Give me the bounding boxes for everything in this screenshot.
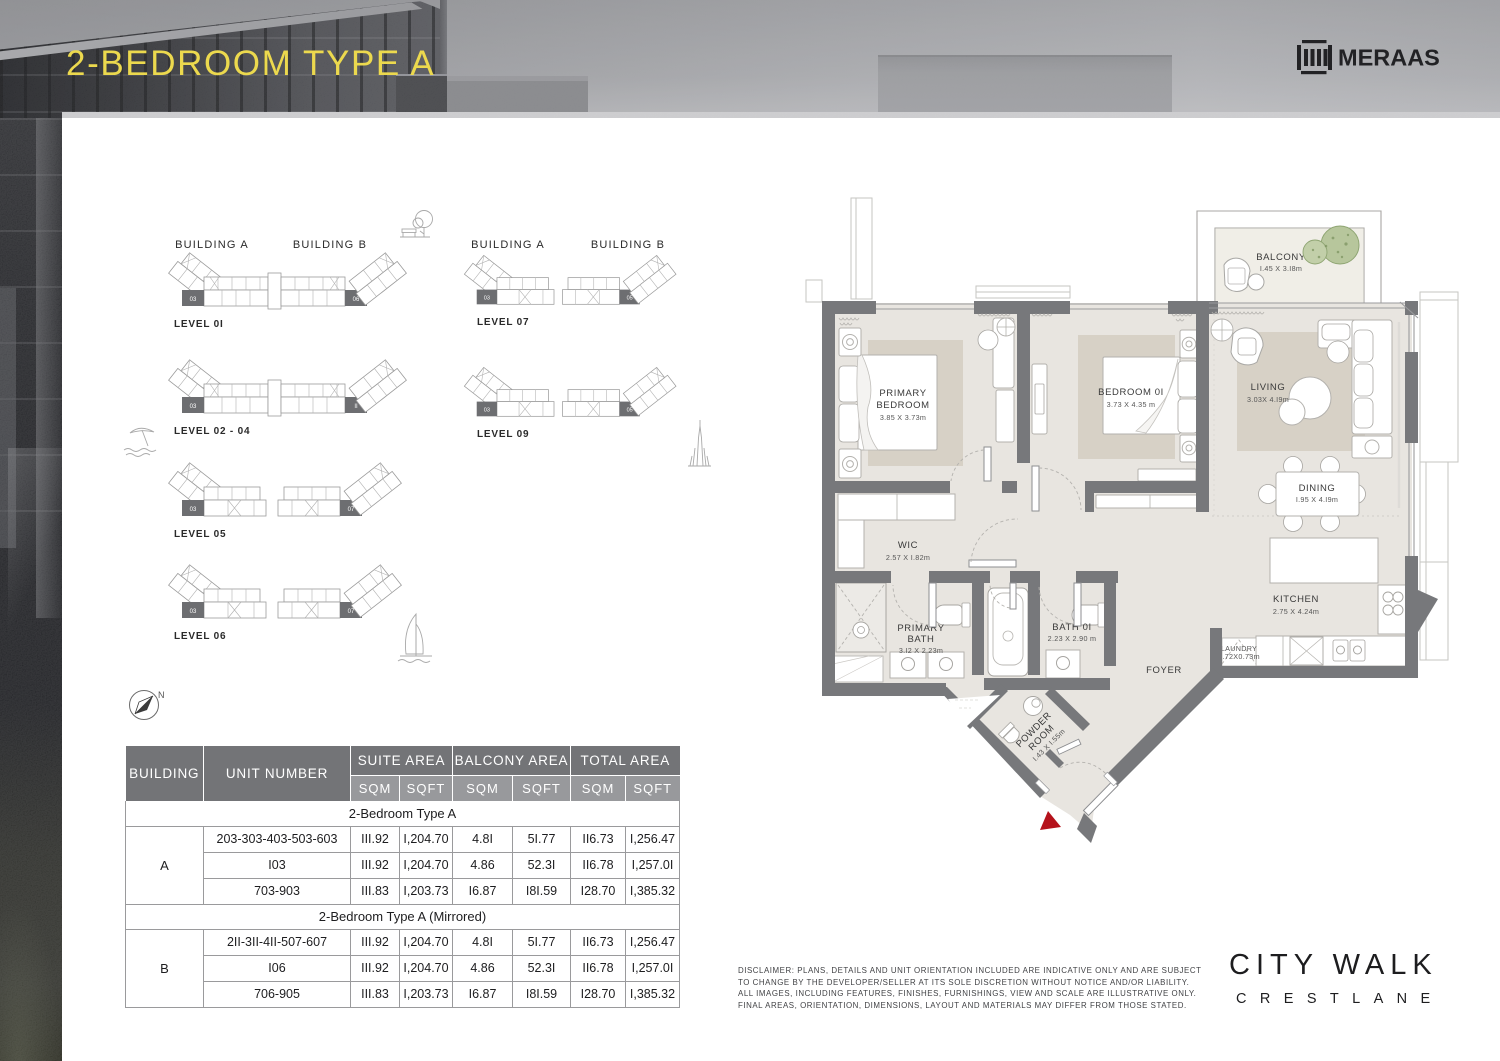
svg-text:03: 03	[190, 609, 197, 615]
svg-text:07: 07	[348, 507, 355, 513]
svg-text:03: 03	[484, 408, 490, 414]
svg-text:WIC: WIC	[898, 540, 918, 551]
svg-text:LEVEL 02 - 04: LEVEL 02 - 04	[174, 426, 250, 437]
svg-text:07: 07	[348, 609, 355, 615]
svg-text:2.57 X I.82m: 2.57 X I.82m	[886, 553, 930, 562]
svg-text:BATH: BATH	[907, 634, 934, 645]
svg-text:3.03X 4.I9m: 3.03X 4.I9m	[1247, 395, 1289, 404]
svg-text:I.95 X 4.I9m: I.95 X 4.I9m	[1296, 495, 1338, 504]
svg-text:2.23 X 2.90 m: 2.23 X 2.90 m	[1048, 634, 1097, 643]
svg-text:BUILDING A: BUILDING A	[175, 239, 249, 251]
svg-text:03: 03	[190, 297, 197, 303]
svg-text:MERAAS: MERAAS	[1338, 45, 1440, 71]
svg-text:BALCONY: BALCONY	[1256, 252, 1306, 263]
svg-text:BUILDING B: BUILDING B	[591, 239, 665, 251]
svg-text:N: N	[158, 690, 165, 700]
svg-text:FOYER: FOYER	[1146, 665, 1182, 676]
svg-text:LEVEL 0I: LEVEL 0I	[174, 319, 224, 330]
svg-text:05: 05	[627, 296, 633, 302]
svg-text:06: 06	[353, 297, 360, 303]
svg-text:03: 03	[190, 404, 197, 410]
svg-text:2.75 X 4.24m: 2.75 X 4.24m	[1273, 607, 1319, 616]
svg-text:3.73 X 4.35 m: 3.73 X 4.35 m	[1107, 400, 1156, 409]
svg-text:II: II	[354, 404, 358, 410]
svg-text:LEVEL 05: LEVEL 05	[174, 529, 226, 540]
svg-text:PRIMARY: PRIMARY	[879, 388, 926, 399]
svg-text:03: 03	[190, 507, 197, 513]
svg-text:BEDROOM: BEDROOM	[876, 400, 929, 411]
svg-text:PRIMARY: PRIMARY	[897, 623, 944, 634]
svg-text:BUILDING B: BUILDING B	[293, 239, 367, 251]
svg-text:3.I2 X 2.23m: 3.I2 X 2.23m	[899, 646, 943, 655]
svg-text:LEVEL 07: LEVEL 07	[477, 317, 529, 328]
svg-text:05: 05	[627, 408, 633, 414]
svg-text:DINING: DINING	[1299, 483, 1336, 494]
svg-text:KITCHEN: KITCHEN	[1273, 594, 1319, 605]
svg-text:3.85 X 3.73m: 3.85 X 3.73m	[880, 413, 926, 422]
svg-text:BUILDING A: BUILDING A	[471, 239, 545, 251]
svg-text:LEVEL 09: LEVEL 09	[477, 429, 529, 440]
svg-text:03: 03	[484, 296, 490, 302]
svg-text:LEVEL 06: LEVEL 06	[174, 631, 226, 642]
svg-text:LIVING: LIVING	[1251, 382, 1286, 393]
svg-text:0.72X0.73m: 0.72X0.73m	[1218, 652, 1260, 661]
svg-text:I.45 X 3.I8m: I.45 X 3.I8m	[1260, 264, 1302, 273]
svg-text:BEDROOM 0I: BEDROOM 0I	[1098, 387, 1164, 398]
